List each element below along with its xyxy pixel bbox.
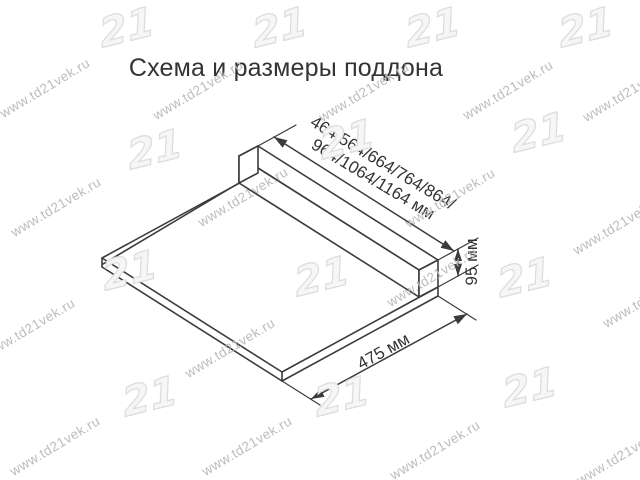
diagram-canvas: Схема и размеры поддона 46 — [0, 0, 640, 480]
length-arrowhead-right — [441, 240, 454, 251]
depth-dimension-label: 475 мм — [354, 329, 413, 373]
height-dimension-label: 95 мм — [462, 238, 481, 285]
pallet-scheme-drawing: 464/564/664/764/864/ 964/1064/1164 мм 95… — [0, 0, 640, 480]
depth-extension-line-left — [282, 381, 320, 405]
length-arrowhead-left — [274, 137, 287, 148]
depth-arrowhead-left — [311, 389, 325, 399]
depth-arrowhead-right — [453, 314, 467, 324]
length-extension-line-left — [258, 125, 296, 146]
